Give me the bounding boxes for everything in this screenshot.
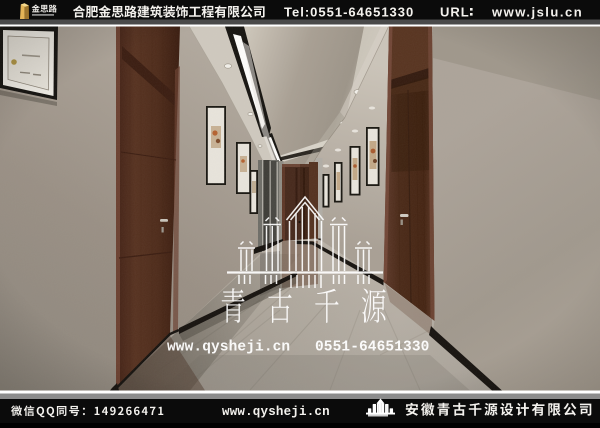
svg-text:URL: URL — [440, 5, 470, 20]
svg-text:Tel:0551-64651330: Tel:0551-64651330 — [284, 5, 414, 20]
svg-text:www.jslu.cn: www.jslu.cn — [491, 5, 583, 20]
svg-text:www.qysheji.cn: www.qysheji.cn — [222, 405, 330, 419]
svg-text:www.qysheji.cn: www.qysheji.cn — [167, 340, 290, 356]
svg-text:0551-64651330: 0551-64651330 — [315, 340, 429, 356]
